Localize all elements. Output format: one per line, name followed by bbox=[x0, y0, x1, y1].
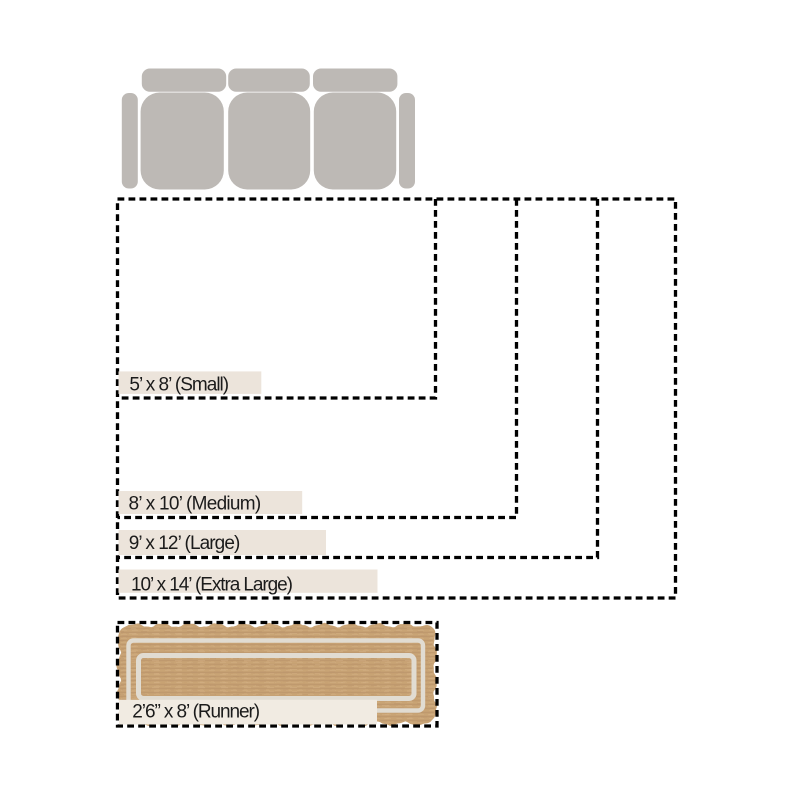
svg-text:2’6” x 8’ (Runner): 2’6” x 8’ (Runner) bbox=[132, 701, 260, 722]
svg-text:9’ x 12’ (Large): 9’ x 12’ (Large) bbox=[129, 533, 241, 554]
svg-text:5’ x 8’ (Small): 5’ x 8’ (Small) bbox=[129, 375, 229, 396]
svg-text:8’ x 10’ (Medium): 8’ x 10’ (Medium) bbox=[129, 494, 262, 515]
svg-text:10’ x 14’ (Extra Large): 10’ x 14’ (Extra Large) bbox=[131, 575, 293, 596]
